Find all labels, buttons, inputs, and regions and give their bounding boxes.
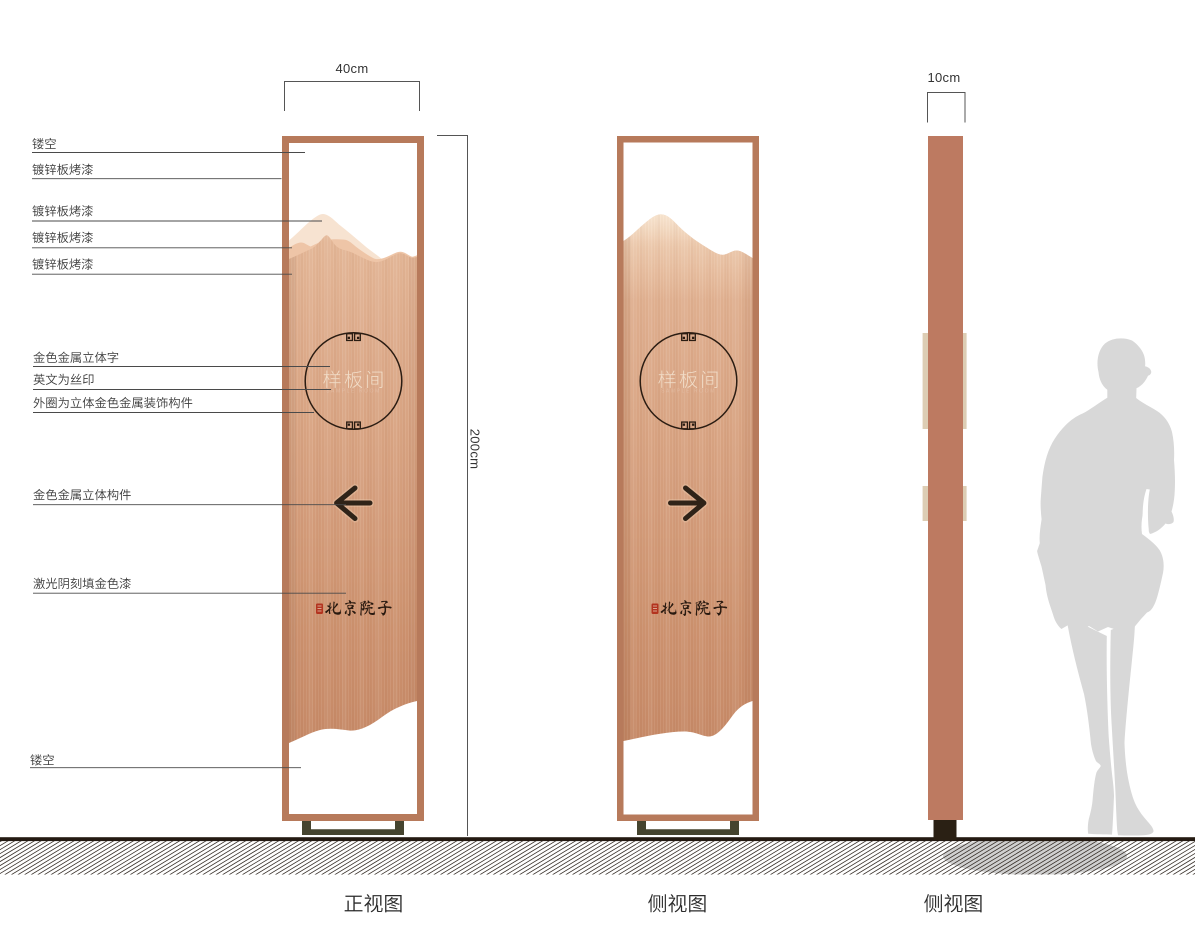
svg-text:40cm: 40cm (336, 61, 369, 76)
svg-text:SAMPLE ROOM: SAMPLE ROOM (326, 389, 381, 395)
svg-text:SAMPLE ROOM: SAMPLE ROOM (661, 389, 716, 395)
svg-text:10cm: 10cm (928, 70, 961, 85)
svg-text:200cm: 200cm (468, 429, 483, 470)
